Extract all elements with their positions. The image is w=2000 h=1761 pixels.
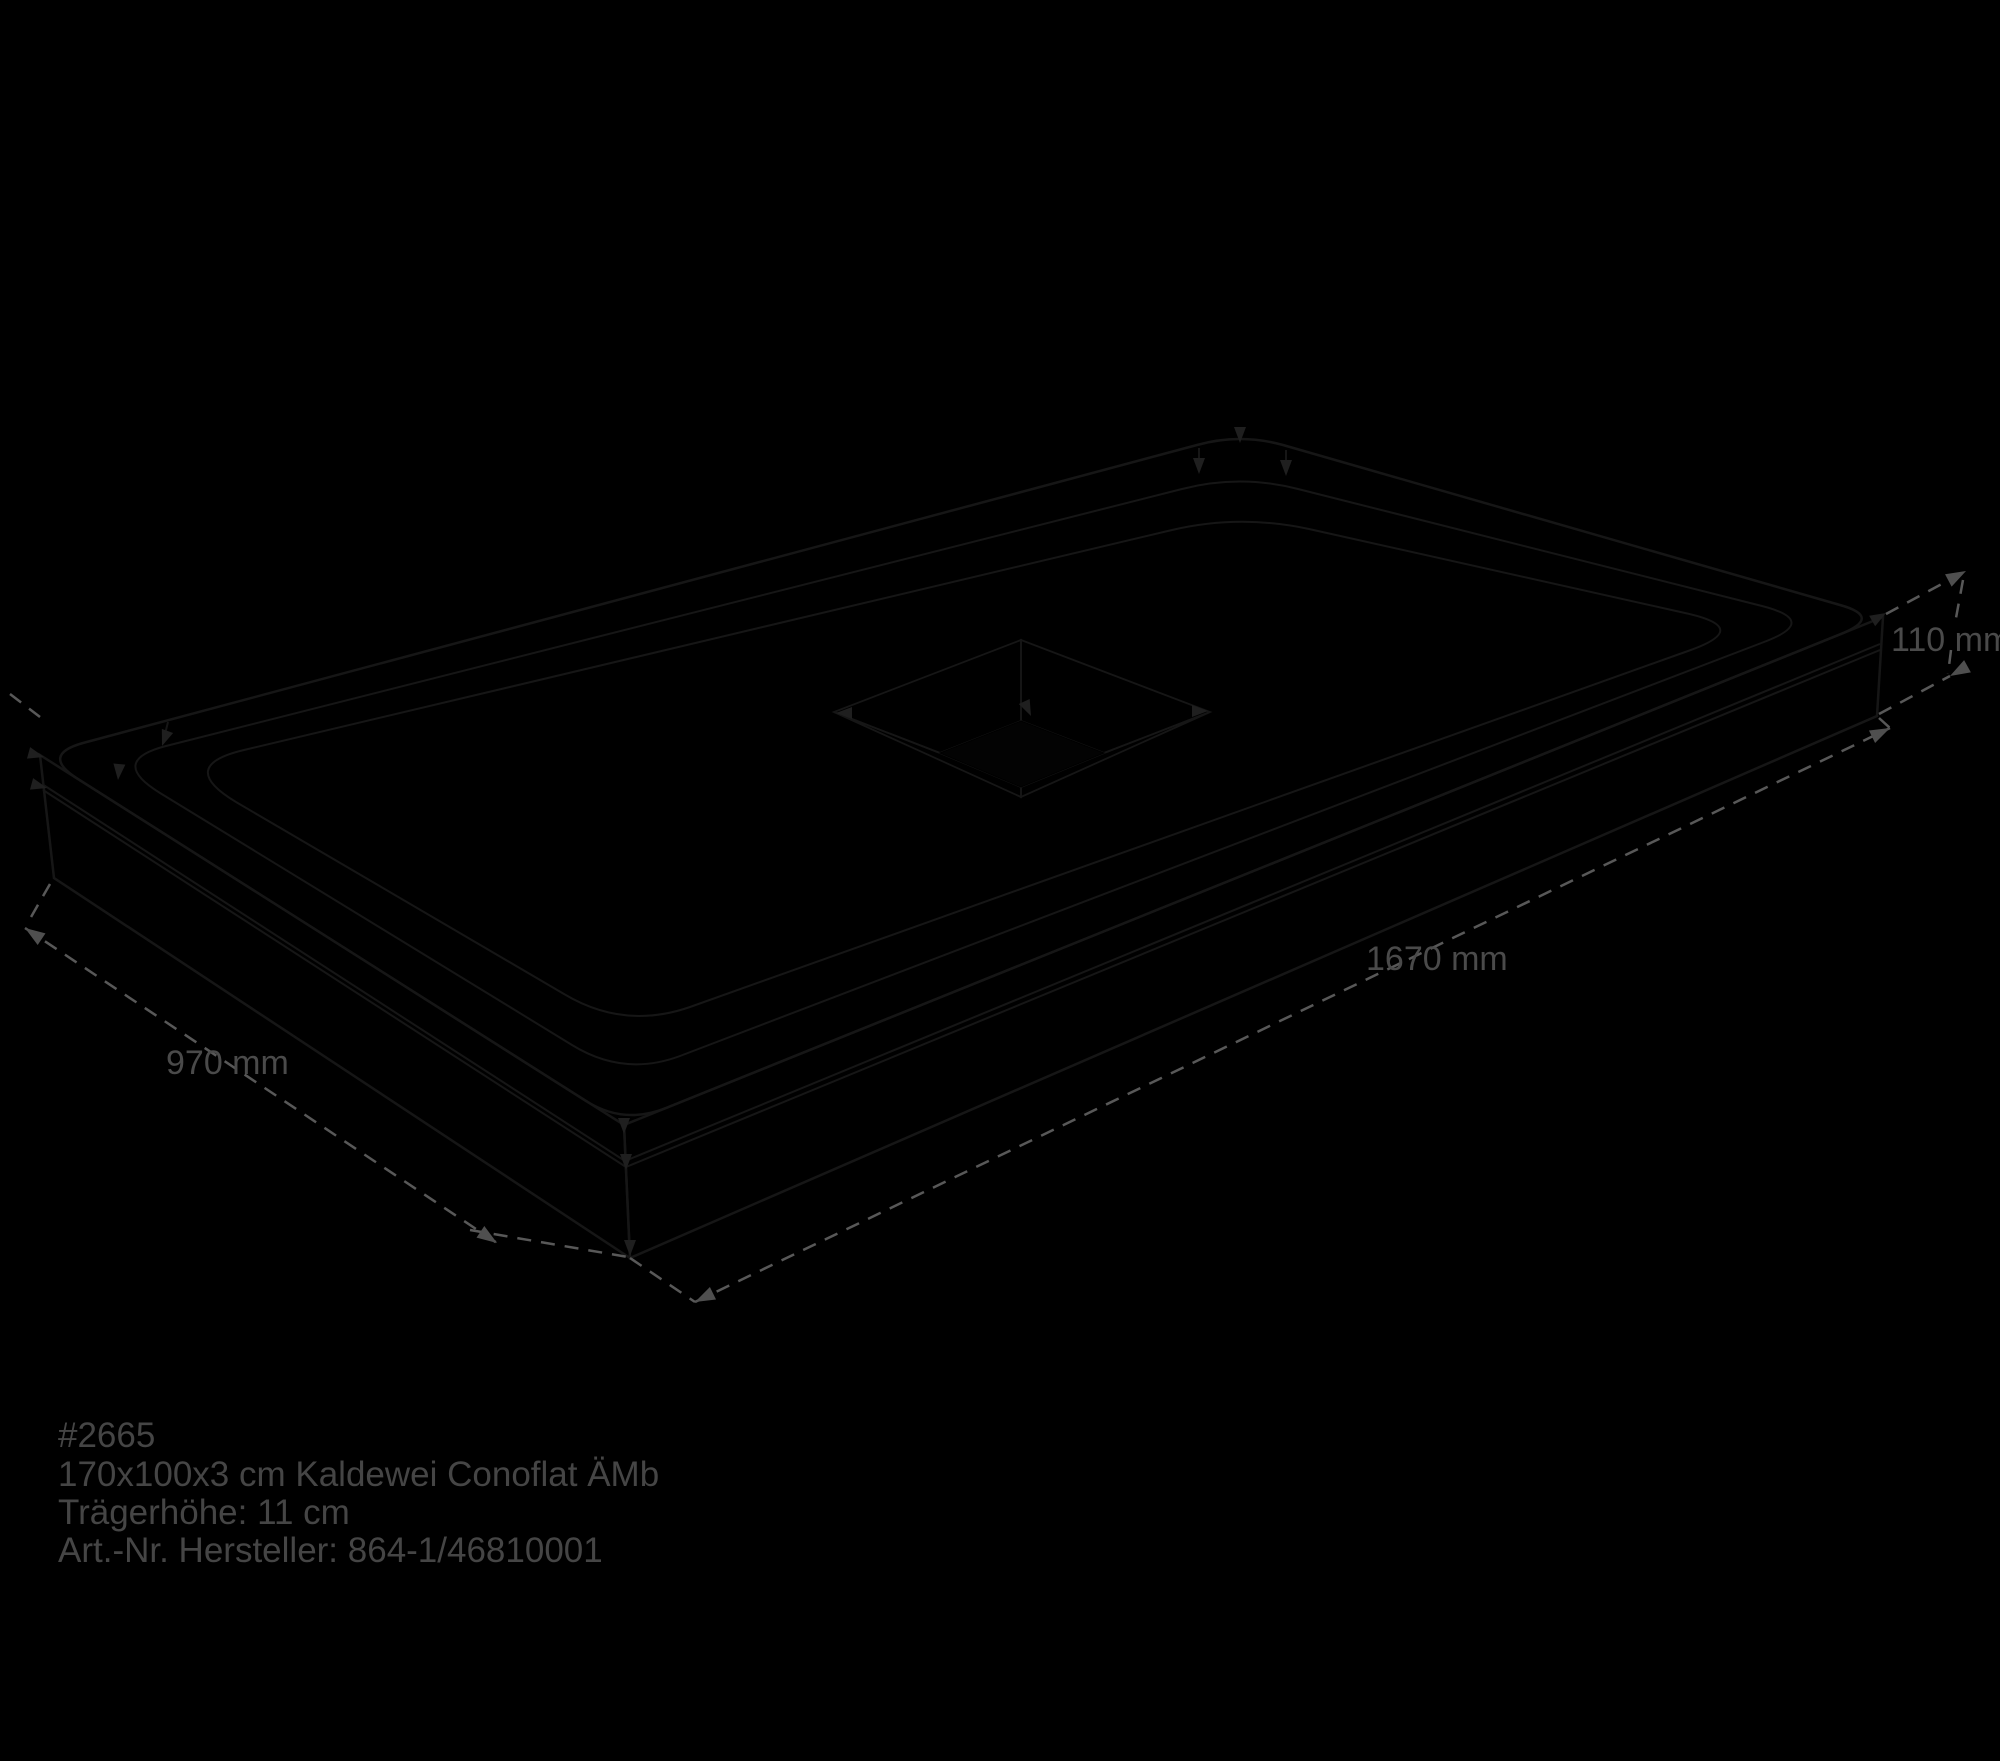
height-dimension-label: 110 mm — [1891, 621, 2000, 659]
length-dimension-label: 1670 mm — [1366, 940, 1508, 978]
footer-product: 170x100x3 cm Kaldewei Conoflat ÄMb — [58, 1455, 659, 1494]
footer-article-number: Art.-Nr. Hersteller: 864-1/46810001 — [58, 1531, 603, 1570]
footer-carrier-height: Trägerhöhe: 11 cm — [58, 1493, 350, 1532]
shower-tray-support-drawing: 970 mm 1670 mm 110 mm #2665 170x100x3 cm… — [0, 0, 2000, 1761]
diagram-canvas: 970 mm 1670 mm 110 mm #2665 170x100x3 cm… — [0, 0, 2000, 1761]
footer-sku: #2665 — [58, 1416, 155, 1455]
width-dimension-label: 970 mm — [166, 1044, 289, 1082]
